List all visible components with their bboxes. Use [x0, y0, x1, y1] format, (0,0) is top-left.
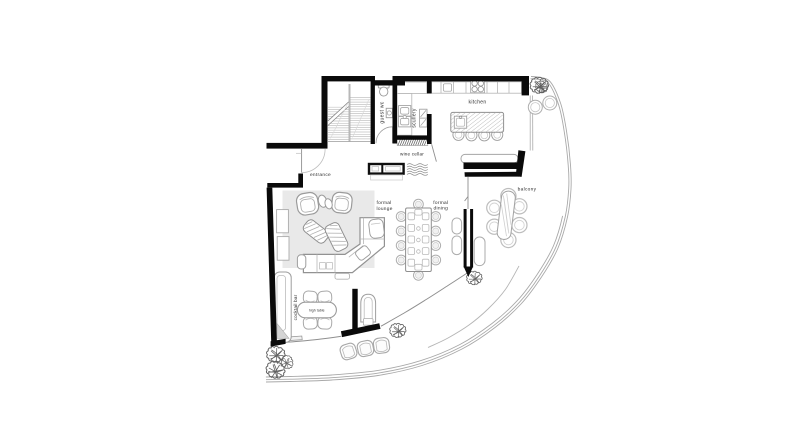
- svg-text:entrance: entrance: [310, 172, 331, 178]
- svg-text:dining: dining: [433, 206, 448, 212]
- svg-text:lounge: lounge: [377, 206, 393, 212]
- svg-text:balcony: balcony: [518, 187, 537, 193]
- svg-text:high table: high table: [309, 309, 325, 313]
- svg-text:wine cellar: wine cellar: [400, 152, 424, 157]
- svg-text:guest wc: guest wc: [380, 101, 386, 123]
- svg-text:formal: formal: [377, 200, 392, 206]
- svg-text:cocktail bar: cocktail bar: [293, 294, 298, 320]
- svg-text:scullery: scullery: [412, 108, 418, 128]
- svg-text:kitchen: kitchen: [469, 100, 487, 106]
- svg-text:formal: formal: [433, 200, 448, 206]
